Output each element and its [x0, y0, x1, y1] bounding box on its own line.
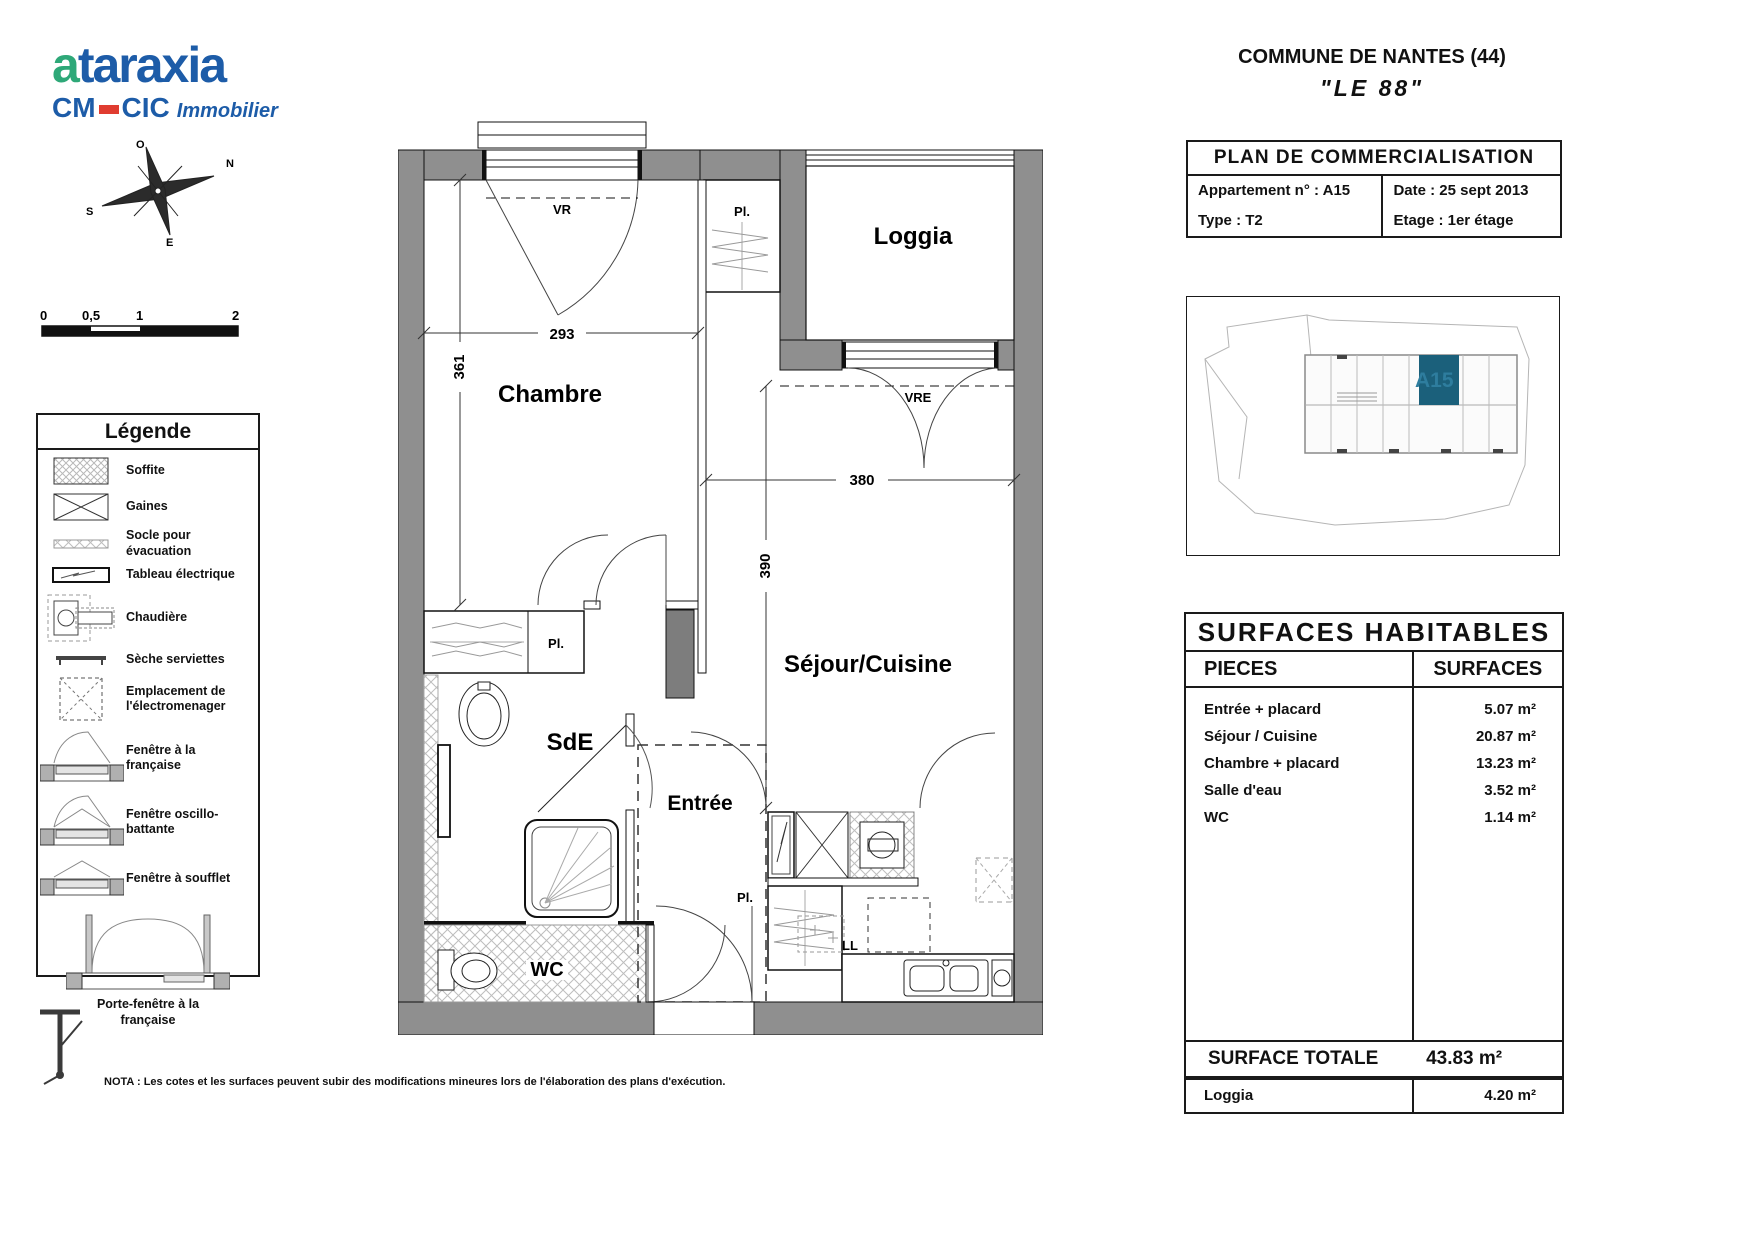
appartement-cell: Appartement n° : A15 [1188, 176, 1381, 206]
gaine-block [666, 610, 694, 698]
loggia-surface-table: Loggia 4.20 m² [1184, 1078, 1564, 1114]
commune-title: COMMUNE DE NANTES (44) [1186, 46, 1558, 69]
placard-top [704, 180, 780, 292]
vr-label: VR [553, 202, 572, 217]
surface-totale-row: SURFACE TOTALE 43.83 m² [1186, 1040, 1562, 1076]
soffite-icon [38, 456, 126, 486]
legend-title: Légende [38, 415, 258, 450]
location-minimap: A15 [1186, 296, 1560, 556]
legend-item-tableau: Tableau électrique [38, 565, 258, 585]
scale-bar: 0 0,5 1 2 [38, 306, 250, 350]
placard-bas [768, 886, 842, 970]
fenetre-soufflet-icon [38, 857, 126, 901]
compass-o-label: O [136, 139, 145, 151]
table-value: 20.87 m² [1414, 723, 1562, 750]
date-cell: Date : 25 sept 2013 [1381, 176, 1560, 206]
legend-item-fenetre-francaise: Fenêtre à la française [38, 729, 258, 787]
table-row: Chambre + placard [1186, 750, 1412, 777]
table-row: Salle d'eau [1186, 777, 1412, 804]
company-logo: ataraxia CMCICImmobilier [52, 40, 278, 122]
seche-serviettes-icon [38, 651, 126, 669]
table-value: 5.07 m² [1414, 696, 1562, 723]
surface-totale-label: SURFACE TOTALE [1186, 1042, 1426, 1076]
table-row: Appartement n° : A15 Date : 25 sept 2013 [1188, 176, 1560, 206]
scale-05: 0,5 [82, 308, 100, 323]
scale-2: 2 [232, 308, 239, 323]
legend-item-gaines: Gaines [38, 492, 258, 522]
dim-380: 380 [849, 472, 874, 489]
legend-item-socle: Socle pour évacuation [38, 528, 258, 559]
placard-top-label: Pl. [734, 204, 750, 219]
info-table-title: PLAN DE COMMERCIALISATION [1188, 142, 1560, 176]
brand-letter: a [52, 37, 78, 93]
surfaces-title: SURFACES HABITABLES [1186, 614, 1562, 652]
subbrand-immobilier: Immobilier [177, 100, 278, 122]
technical-cluster [691, 732, 995, 886]
chambre-label: Chambre [498, 381, 602, 408]
table-value: 13.23 m² [1414, 750, 1562, 777]
chambre-door [538, 535, 698, 609]
table-row: WC [1186, 804, 1412, 831]
page: { "logo": {"brand_a": "a", "brand_rest":… [0, 0, 1754, 1240]
surfaces-header: PIECES SURFACES [1186, 652, 1562, 688]
surfaces-column: 5.07 m² 20.87 m² 13.23 m² 3.52 m² 1.14 m… [1412, 688, 1562, 1040]
nota-text: NOTA : Les cotes et les surfaces peuvent… [104, 1076, 725, 1088]
subbrand: CMCICImmobilier [52, 94, 278, 122]
vr-window [482, 150, 642, 315]
building-footprint [1305, 355, 1517, 453]
compass-e-label: E [166, 237, 173, 248]
col-surfaces: SURFACES [1412, 652, 1562, 686]
brand-rest: taraxia [78, 37, 225, 93]
surfaces-body: Entrée + placard Séjour / Cuisine Chambr… [1186, 688, 1562, 1040]
ll-label: LL [842, 938, 858, 953]
pieces-column: Entrée + placard Séjour / Cuisine Chambr… [1186, 688, 1412, 1040]
red-dash-icon [99, 105, 119, 114]
dim-293: 293 [549, 326, 574, 343]
table-value: 1.14 m² [1414, 804, 1562, 831]
placard-bas-label: Pl. [737, 890, 753, 905]
legend-panel: Légende Soffite Gaines Socle pour évacua… [36, 413, 260, 977]
fenetre-oscillo-icon [38, 793, 126, 851]
loggia-label: Loggia [874, 223, 953, 250]
gaines-icon [38, 492, 126, 522]
residence-title: "LE 88" [1186, 75, 1558, 102]
plan-info-table: PLAN DE COMMERCIALISATION Appartement n°… [1186, 140, 1562, 238]
floor-plan: VR Pl. Loggia VRE Pl. [398, 110, 1043, 1035]
tableau-electrique-icon [38, 565, 126, 585]
architect-stamp-icon [30, 1005, 94, 1089]
surfaces-table: SURFACES HABITABLES PIECES SURFACES Entr… [1184, 612, 1564, 1078]
wc-label: WC [530, 959, 563, 981]
sejour-label: Séjour/Cuisine [784, 651, 952, 678]
table-row: Séjour / Cuisine [1186, 723, 1412, 750]
brand-name: ataraxia [52, 40, 278, 90]
dim-361: 361 [451, 354, 468, 379]
type-cell: Type : T2 [1188, 206, 1381, 236]
entree-label: Entrée [667, 792, 732, 815]
subbrand-cm: CM [52, 92, 96, 123]
legend-item-soffite: Soffite [38, 456, 258, 486]
legend-item-fenetre-oscillo: Fenêtre oscillo-battante [38, 793, 258, 851]
legend-item-chaudiere: Chaudière [38, 591, 258, 645]
compass-s-label: S [86, 206, 93, 218]
surface-totale-value: 43.83 m² [1426, 1042, 1502, 1076]
loggia-row-value: 4.20 m² [1412, 1080, 1562, 1112]
subbrand-cic: CIC [122, 92, 170, 123]
scale-1: 1 [136, 308, 143, 323]
placard-chambre-label: Pl. [548, 636, 564, 651]
legend-item-seche-serviettes: Sèche serviettes [38, 651, 258, 669]
unit-a15-label: A15 [1415, 369, 1454, 392]
legend-item-electromenager: Emplacement de l'électromenager [38, 675, 258, 723]
sde-label: SdE [547, 729, 594, 756]
scale-bar-strip [42, 326, 238, 336]
table-row: Entrée + placard [1186, 696, 1412, 723]
document-header: COMMUNE DE NANTES (44) "LE 88" [1186, 46, 1558, 102]
table-value: 3.52 m² [1414, 777, 1562, 804]
etage-cell: Etage : 1er étage [1381, 206, 1560, 236]
wc-area [424, 923, 725, 1002]
electromenager-icon [38, 675, 126, 723]
socle-icon [38, 537, 126, 551]
compass-rose: N S E O [78, 136, 248, 248]
fenetre-francaise-icon [38, 729, 126, 787]
col-pieces: PIECES [1186, 652, 1412, 686]
chaudiere-icon [38, 591, 126, 645]
vre-label: VRE [905, 390, 932, 405]
table-row: Type : T2 Etage : 1er étage [1188, 206, 1560, 236]
legend-item-fenetre-soufflet: Fenêtre à soufflet [38, 857, 258, 901]
loggia-row-label: Loggia [1186, 1080, 1412, 1112]
scale-0: 0 [40, 308, 47, 323]
porte-fenetre-icon [66, 907, 230, 995]
compass-n-label: N [226, 158, 234, 170]
dim-390: 390 [757, 553, 774, 578]
